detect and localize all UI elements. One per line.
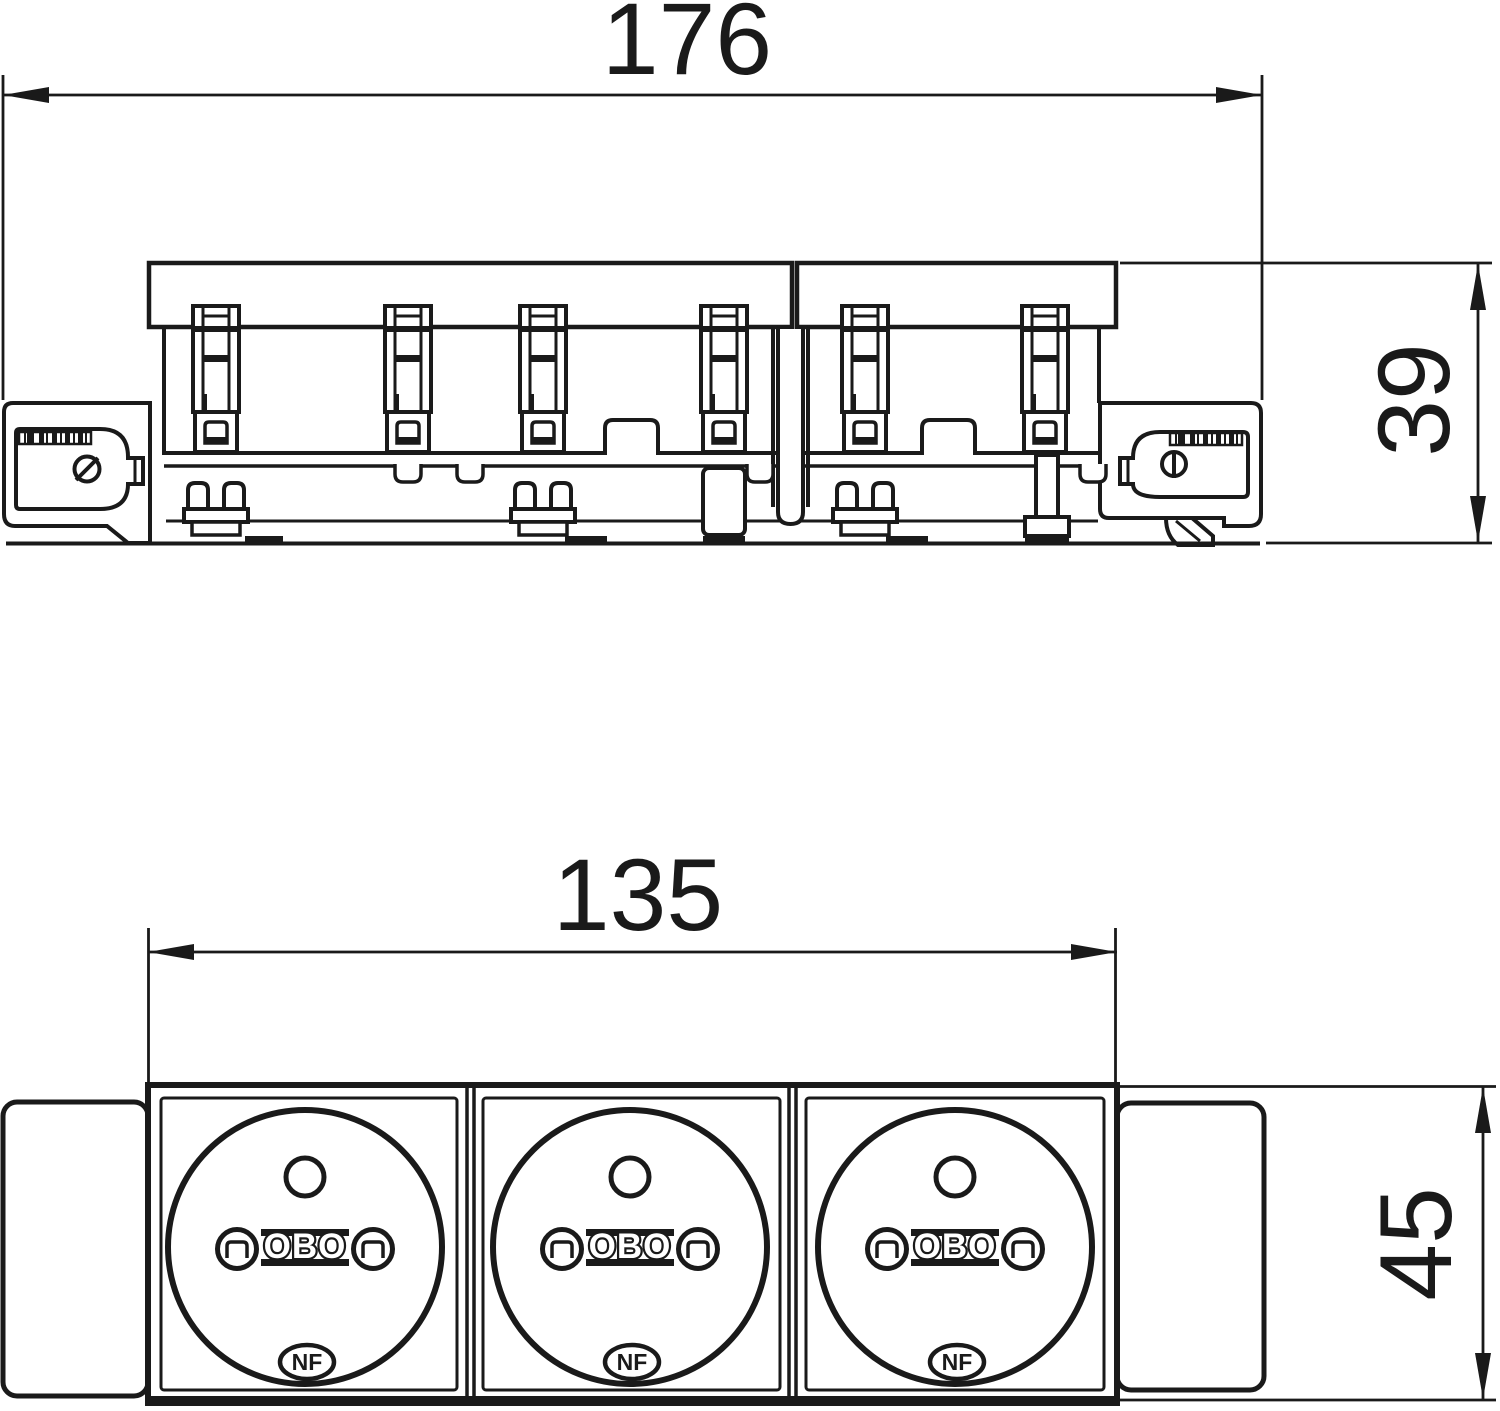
dimension-label-overall-height: 39 <box>1357 343 1471 456</box>
front-left-end-cap <box>3 1102 148 1396</box>
clamp-tower-2 <box>385 306 431 452</box>
socket-outlet-3: OBO NF <box>818 1110 1092 1384</box>
clamp-tower-6 <box>1022 306 1068 452</box>
drawing-canvas: OBO NF OBO NF OBO NF 176 39 <box>0 0 1500 1411</box>
obo-logo-text-3: OBO <box>914 1227 997 1266</box>
socket-outlet-1: OBO NF <box>168 1110 442 1384</box>
clamp-tower-1 <box>193 306 239 452</box>
dimension-label-module-height: 45 <box>1359 1187 1473 1300</box>
dimension-label-overall-width: 176 <box>602 0 772 96</box>
dimension-label-module-width: 135 <box>553 838 723 952</box>
technical-drawing-page: OBO NF OBO NF OBO NF 176 39 <box>0 0 1500 1411</box>
obo-logo-text-2: OBO <box>589 1227 672 1266</box>
clamp-tower-4 <box>701 306 747 452</box>
front-right-end-cap <box>1117 1103 1264 1390</box>
nf-mark-text-2: NF <box>617 1349 648 1375</box>
center-channel <box>773 328 808 524</box>
nf-mark-text-1: NF <box>292 1349 323 1375</box>
clamp-tower-3 <box>520 306 566 452</box>
left-end-cap <box>4 403 150 543</box>
obo-logo-text-1: OBO <box>264 1227 347 1266</box>
clamp-tower-5 <box>842 306 888 452</box>
nf-mark-text-3: NF <box>942 1349 973 1375</box>
cover-plates <box>149 263 1116 327</box>
front-view: OBO NF OBO NF OBO NF <box>3 1085 1264 1403</box>
socket-outlet-2: OBO NF <box>493 1110 767 1384</box>
